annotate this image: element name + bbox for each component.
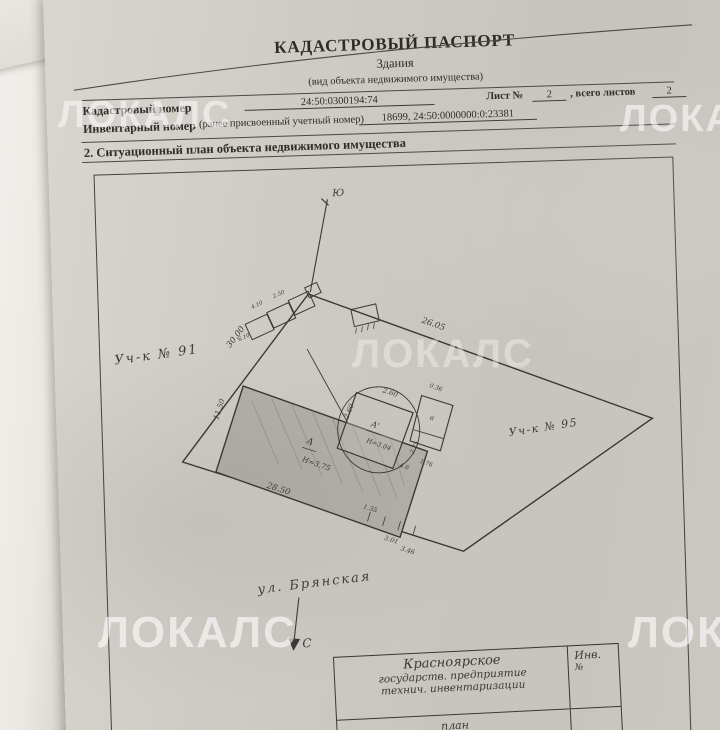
- sheet-label: Лист №: [486, 90, 523, 102]
- inventory-number-note: (ранее присвоенный учетный номер): [199, 114, 364, 130]
- street-label: ул. Брянская: [256, 569, 372, 598]
- stamp-row2-inv-cell: [570, 707, 622, 730]
- bti-stamp-table: Красноярское государств. предприятие тех…: [333, 643, 623, 730]
- stamp-inv-cell: Инв. №: [567, 644, 621, 708]
- inventory-number-label: Инвентарный номер: [83, 118, 196, 137]
- stamp-inv-number-label: №: [575, 661, 619, 673]
- total-sheets-label: , всего листов: [570, 87, 635, 100]
- cadastral-passport-page: КАДАСТРОВЫЙ ПАСПОРТ Здания (вид объекта …: [43, 0, 720, 730]
- south-label: Ю: [331, 188, 344, 199]
- dim-small-top: 0.36: [428, 382, 443, 393]
- dim-building-left: 11.50: [211, 397, 226, 420]
- total-sheets-value: 2: [652, 85, 686, 98]
- building-a-label: а: [429, 414, 436, 423]
- photo-of-document: КАДАСТРОВЫЙ ПАСПОРТ Здания (вид объекта …: [0, 0, 720, 730]
- north-label: С: [302, 636, 312, 650]
- parcel-91-label: Уч-к № 91: [114, 342, 200, 368]
- parcel-95-label: Уч-к № 95: [508, 416, 579, 440]
- sheet-value: 2: [532, 89, 566, 102]
- stamp-inv-label: Инв.: [574, 647, 618, 662]
- dim-annex-top: 2.60: [381, 386, 400, 399]
- dim-top-side: 26.05: [419, 316, 446, 334]
- dim-tick-3: 3.46: [400, 544, 416, 556]
- building-a-divider: [414, 429, 444, 440]
- dim-shed-2: 2.50: [271, 289, 286, 300]
- inventory-number-value: 18699, 24:50:0000000:0:23381: [359, 108, 537, 126]
- detached-shed: [351, 304, 380, 327]
- cadastral-number-label: Кадастровый номер: [82, 101, 191, 119]
- north-arrow-icon: [289, 638, 299, 649]
- stamp-org-cell: Красноярское государств. предприятие тех…: [334, 646, 570, 719]
- dim-shed-1: 4.10: [249, 300, 264, 311]
- axis-line-top: [307, 199, 330, 292]
